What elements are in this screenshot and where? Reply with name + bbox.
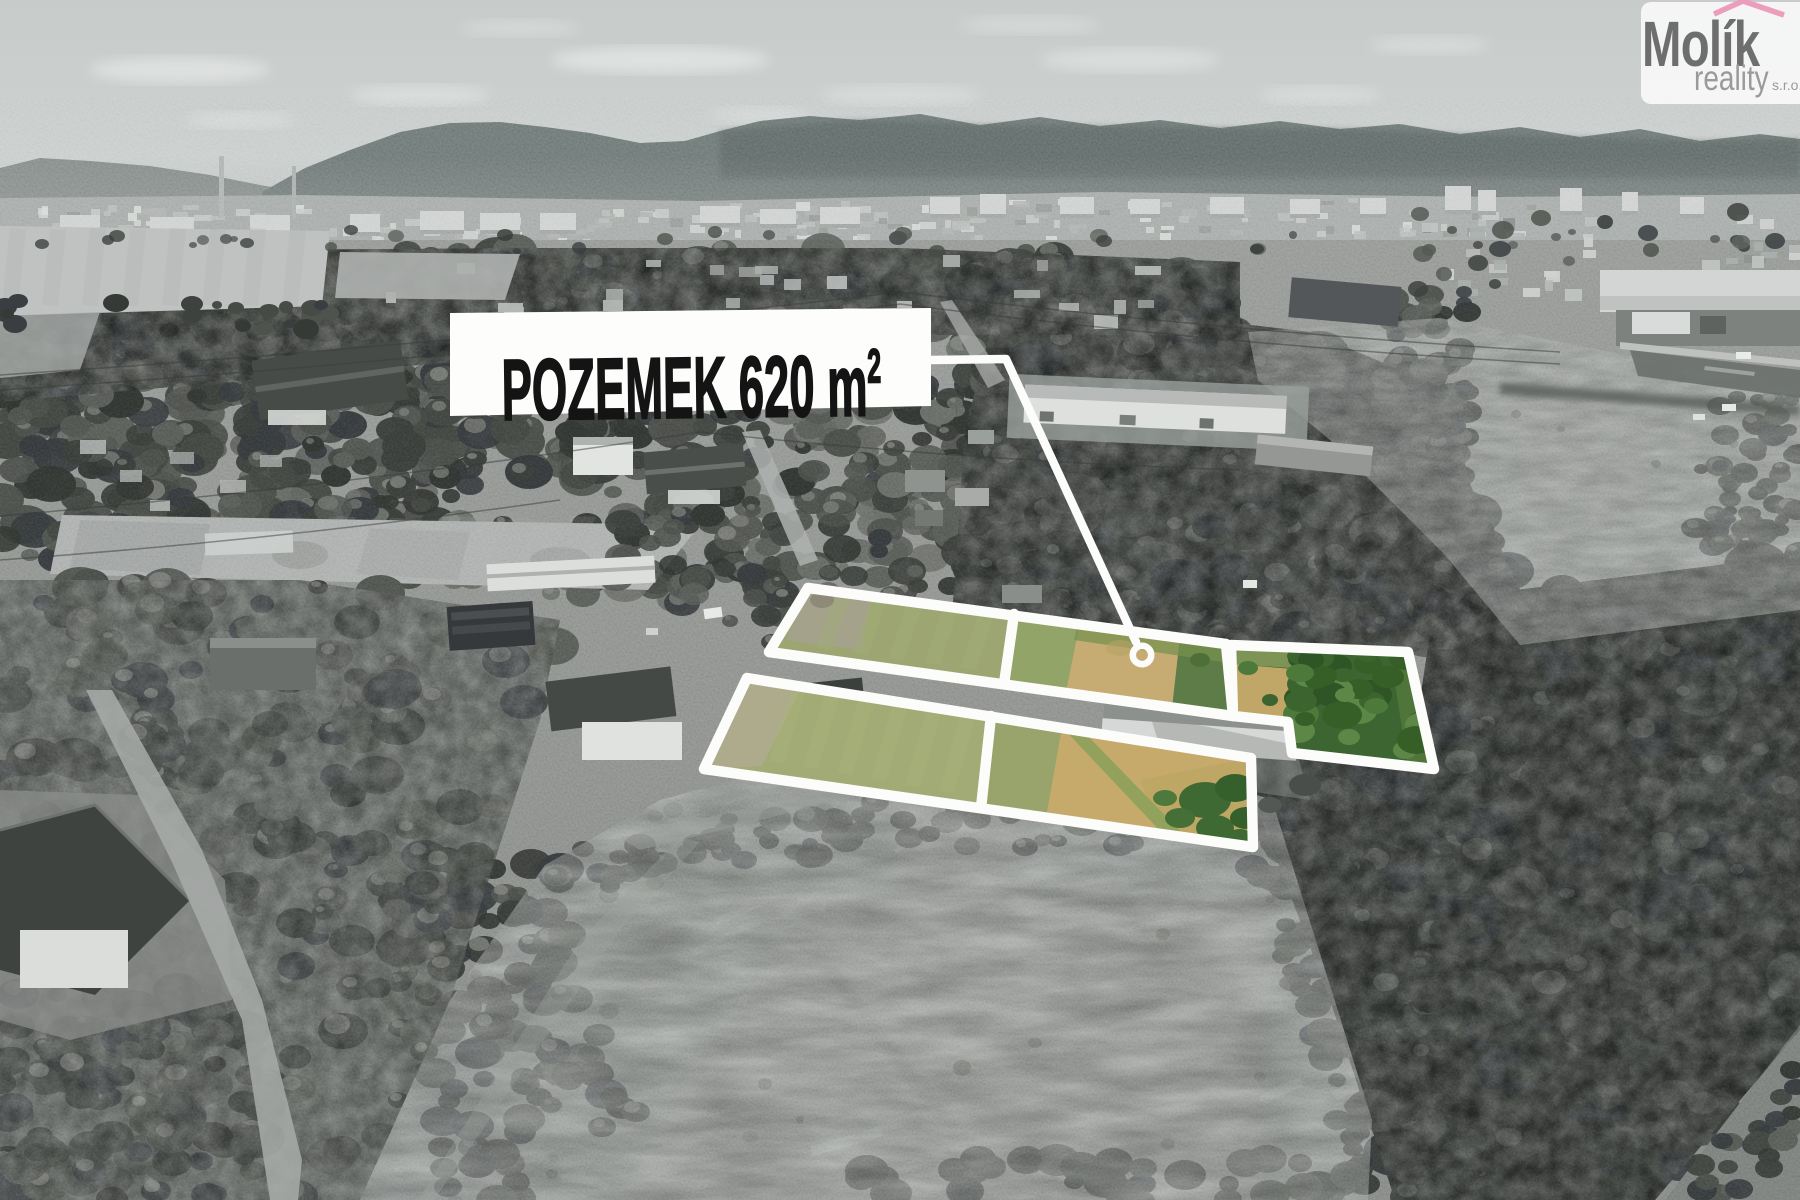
svg-text:s.r.o.: s.r.o.	[1772, 77, 1800, 93]
svg-text:POZEMEK 620 m2: POZEMEK 620 m2	[501, 336, 882, 438]
svg-text:reality: reality	[1694, 58, 1769, 98]
